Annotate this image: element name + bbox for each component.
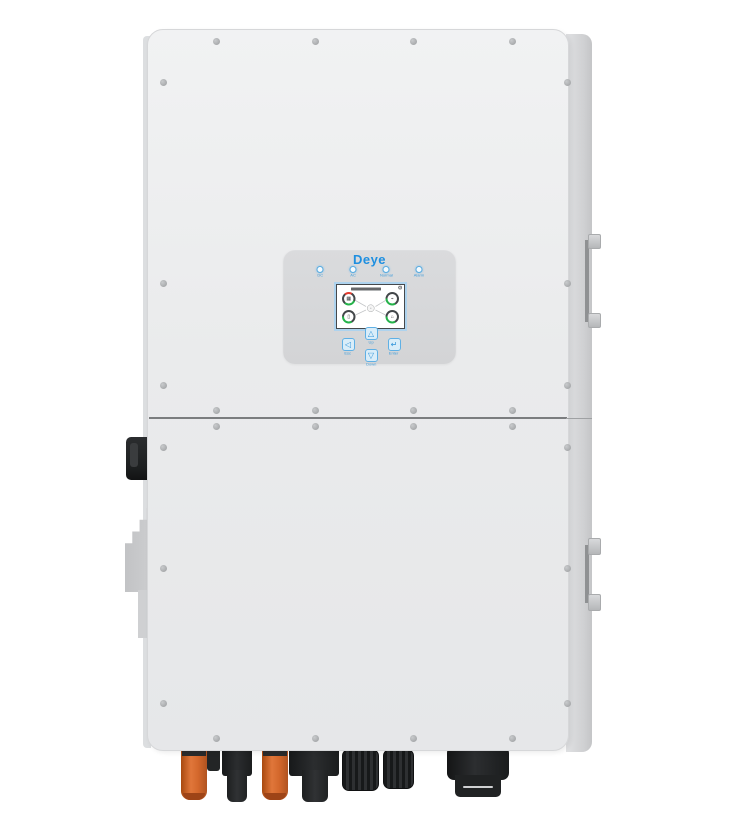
led-alarm: Alarm: [405, 266, 433, 282]
battery-connector-black-body: [227, 770, 247, 802]
screw: [564, 382, 571, 389]
load-gauge: ⌂: [386, 310, 400, 324]
display-panel: Deye DC AC Normal Alarm ⚙: [283, 249, 456, 364]
led-ac: AC: [339, 266, 367, 282]
screw: [564, 700, 571, 707]
battery-icon: ▯: [347, 314, 350, 319]
screw: [213, 735, 220, 742]
down-button-group: ▽ Down: [356, 349, 386, 371]
led-dc: DC: [306, 266, 334, 282]
alarm-led-icon: [416, 266, 423, 273]
screw: [509, 407, 516, 414]
pv-gauge: ▦: [342, 292, 356, 306]
connector-block-body: [302, 770, 328, 802]
enter-button[interactable]: ↵: [388, 338, 401, 351]
screw: [160, 700, 167, 707]
led-normal: Normal: [372, 266, 400, 282]
led-label: Normal: [380, 273, 393, 278]
lcd-content: ⚙ ▦ ⌁ ▯ ⌂: [337, 285, 404, 328]
screw: [410, 423, 417, 430]
esc-button-label: Esc: [345, 351, 352, 356]
home-load-icon: ⌂: [391, 314, 394, 319]
power-flow-hub: [367, 305, 375, 313]
cover-seam-side: [566, 418, 592, 419]
down-button-label: Down: [366, 362, 376, 367]
esc-button[interactable]: ◁: [342, 338, 355, 351]
up-arrow-icon: △: [368, 330, 374, 338]
screw: [213, 38, 220, 45]
screw: [160, 565, 167, 572]
product-photo: Deye DC AC Normal Alarm ⚙: [0, 0, 736, 820]
screw: [509, 38, 516, 45]
screw: [564, 444, 571, 451]
mount-rail-top: [585, 240, 589, 322]
brand-logo: Deye: [283, 252, 456, 267]
cover-seam: [149, 417, 567, 419]
down-arrow-icon: ▽: [368, 352, 374, 360]
mount-tab: [588, 313, 601, 328]
battery-gauge: ▯: [342, 310, 356, 324]
screw: [160, 79, 167, 86]
up-button-label: Up: [368, 340, 373, 345]
inverter-front-cover: [147, 29, 569, 751]
status-led-row: DC AC Normal Alarm: [306, 266, 433, 282]
led-label: DC: [317, 273, 323, 278]
grid-gauge: ⌁: [386, 292, 400, 306]
grid-icon: ⌁: [391, 296, 394, 301]
screw: [410, 407, 417, 414]
screw: [312, 407, 319, 414]
screw: [564, 565, 571, 572]
enter-button-label: Enter: [389, 351, 399, 356]
solar-panel-icon: ▦: [346, 296, 351, 301]
screw: [213, 407, 220, 414]
lcd-screen: ⚙ ▦ ⌁ ▯ ⌂: [336, 284, 405, 329]
screw: [410, 38, 417, 45]
battery-connector-orange: [262, 746, 288, 800]
screw: [213, 423, 220, 430]
esc-icon: ◁: [345, 341, 351, 349]
screw: [312, 735, 319, 742]
screw: [564, 79, 571, 86]
normal-led-icon: [383, 266, 390, 273]
gland-highlight: [463, 786, 493, 788]
screw: [160, 444, 167, 451]
ac-led-icon: [350, 266, 357, 273]
mount-tab: [588, 594, 601, 611]
pv-mc4-connector: [383, 749, 414, 789]
battery-connector-orange: [181, 746, 207, 800]
mount-tab: [588, 234, 601, 249]
led-label: AC: [350, 273, 356, 278]
dc-led-icon: [317, 266, 324, 273]
up-button[interactable]: △: [365, 327, 378, 340]
down-button[interactable]: ▽: [365, 349, 378, 362]
enter-icon: ↵: [391, 341, 398, 349]
screw: [509, 423, 516, 430]
screw: [312, 38, 319, 45]
screw: [160, 280, 167, 287]
screw: [509, 735, 516, 742]
screw: [312, 423, 319, 430]
inverter-right-side: [566, 34, 592, 752]
screw: [160, 382, 167, 389]
screw: [410, 735, 417, 742]
pv-mc4-connector: [342, 749, 379, 791]
mount-tab: [588, 538, 601, 555]
led-label: Alarm: [414, 273, 424, 278]
screw: [564, 280, 571, 287]
